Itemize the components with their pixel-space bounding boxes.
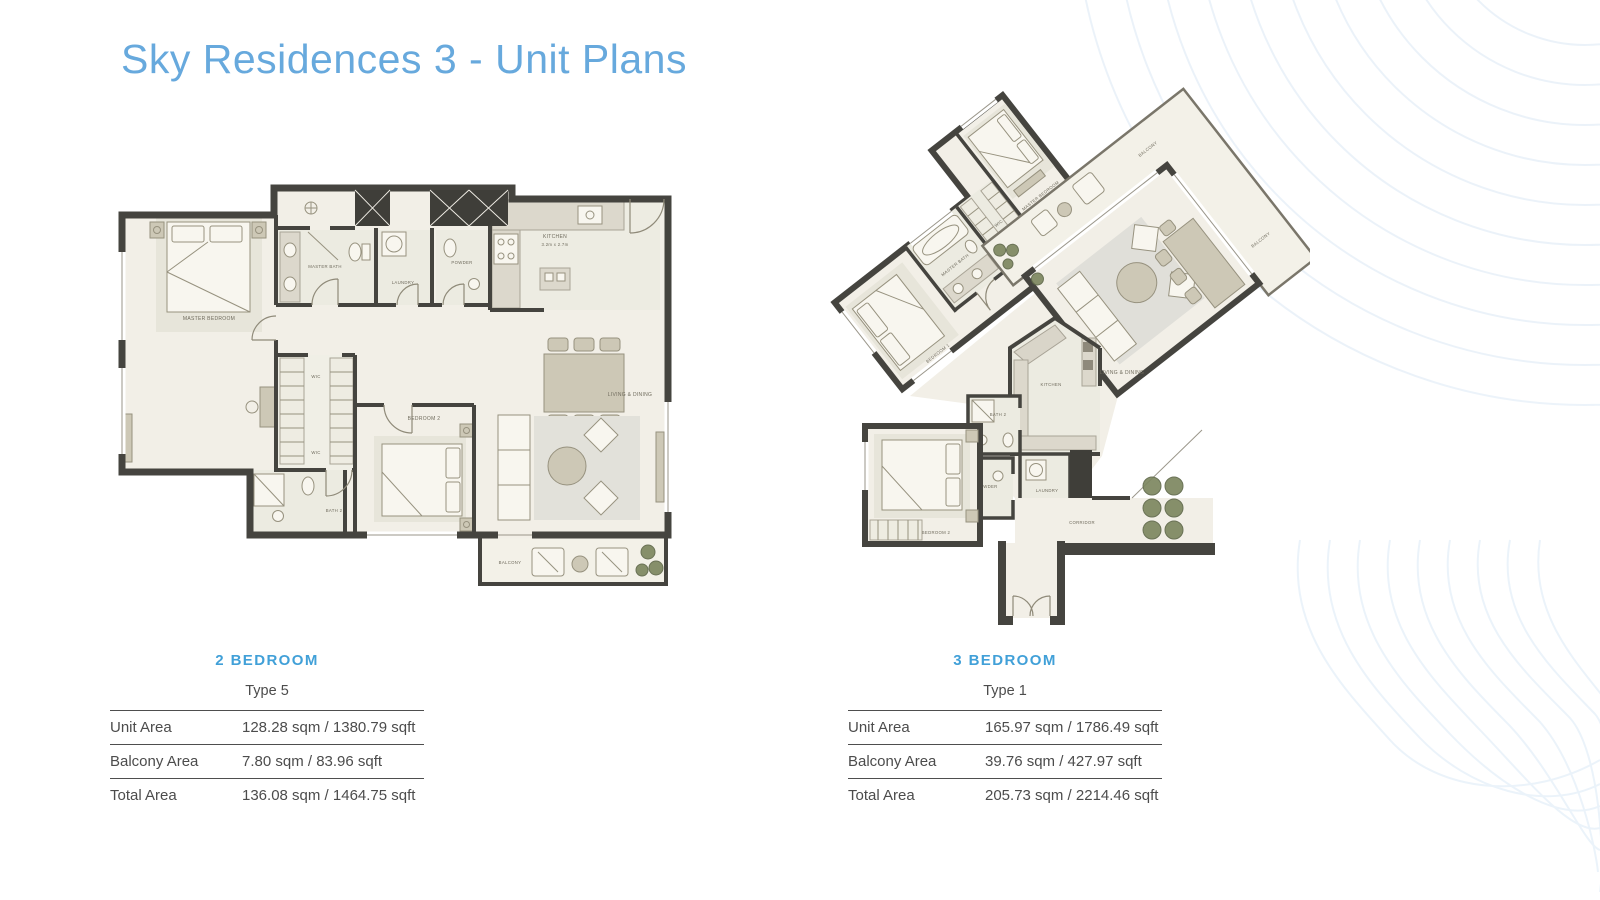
room-label-wic: WIC (311, 374, 320, 379)
plan-heading-2br: 2 BEDROOM (110, 652, 424, 669)
room-label-laundry: LAUNDRY (392, 280, 415, 285)
type-label-2br: Type 5 (110, 683, 424, 699)
bedroom-2 (374, 424, 473, 531)
bedroom-2: BEDROOM 2 (862, 426, 981, 544)
stove-icon (494, 234, 518, 264)
table-row: Unit Area 165.97 sqm / 1786.49 sqft (848, 710, 1162, 744)
type-label-3br: Type 1 (848, 683, 1162, 699)
room-label-master-bath: MASTER BATH (308, 264, 342, 269)
row-label: Total Area (848, 787, 985, 804)
armchair-icon (1132, 225, 1159, 252)
sink-icon (284, 243, 296, 257)
sink-icon (469, 279, 480, 290)
room-label-kitchen: KITCHEN (543, 234, 567, 240)
room-label-wic: WIC (311, 450, 320, 455)
table-row: Unit Area 128.28 sqm / 1380.79 sqft (110, 710, 424, 744)
row-label: Total Area (110, 787, 242, 804)
area-table-2-bedroom: 2 BEDROOM Type 5 Unit Area 128.28 sqm / … (110, 652, 424, 812)
dining-set (544, 338, 624, 428)
room-label-balcony: BALCONY (499, 560, 522, 565)
plan-heading-3br: 3 BEDROOM (848, 652, 1162, 669)
room-label-bath2: BATH 2 (326, 508, 343, 513)
row-label: Unit Area (110, 719, 242, 736)
room-label-powder: POWDER (451, 260, 472, 265)
table-row: Total Area 205.73 sqm / 2214.46 sqft (848, 778, 1162, 812)
page-title: Sky Residences 3 - Unit Plans (121, 36, 687, 83)
coffee-table-icon (548, 447, 586, 485)
row-value: 136.08 sqm / 1464.75 sqft (242, 787, 424, 804)
row-value: 128.28 sqm / 1380.79 sqft (242, 719, 424, 736)
sofa-icon (498, 415, 530, 520)
closet-shaft (1070, 450, 1092, 498)
toilet-icon (1003, 433, 1013, 447)
room-label-bedroom2: BEDROOM 2 (922, 530, 951, 535)
row-value: 7.80 sqm / 83.96 sqft (242, 753, 424, 770)
area-table-3-bedroom: 3 BEDROOM Type 1 Unit Area 165.97 sqm / … (848, 652, 1162, 812)
sink-icon (273, 511, 284, 522)
room-label-laundry: LAUNDRY (1036, 488, 1059, 493)
row-value: 165.97 sqm / 1786.49 sqft (985, 719, 1162, 736)
room-label-bedroom2: BEDROOM 2 (408, 416, 441, 422)
table-row: Total Area 136.08 sqm / 1464.75 sqft (110, 778, 424, 812)
side-table-icon (572, 556, 588, 572)
room-label-master-bedroom: MASTER BEDROOM (183, 316, 235, 322)
living-area (498, 415, 664, 520)
room-label-living: LIVING & DINING (608, 392, 653, 398)
kitchen-sink-icon (578, 206, 602, 224)
room-dims-kitchen: 3.2m x 2.7m (542, 242, 569, 247)
table-row: Balcony Area 7.80 sqm / 83.96 sqft (110, 744, 424, 778)
plant-icon (641, 545, 655, 559)
room-label-kitchen: KITCHEN (1041, 382, 1062, 387)
row-label: Unit Area (848, 719, 985, 736)
floorplan-3-bedroom: MASTER BEDROOM MASTER BATH WIC BEDROOM 1… (770, 86, 1310, 626)
toilet-icon (302, 477, 314, 495)
floorplan-2-bedroom: MASTER BEDROOM MASTER BATH LAUNDRY POWDE… (112, 172, 672, 602)
row-value: 205.73 sqm / 2214.46 sqft (985, 787, 1162, 804)
table-row: Balcony Area 39.76 sqm / 427.97 sqft (848, 744, 1162, 778)
dining-table-icon (544, 354, 624, 412)
tv-console-icon (656, 432, 664, 502)
laundry (382, 232, 406, 256)
desk-icon (260, 387, 275, 427)
room-label-bath2: BATH 2 (990, 412, 1007, 417)
laundry: LAUNDRY (1020, 450, 1092, 498)
row-label: Balcony Area (848, 753, 985, 770)
row-label: Balcony Area (110, 753, 242, 770)
room-label-corridor: CORRIDOR (1069, 520, 1095, 525)
row-value: 39.76 sqm / 427.97 sqft (985, 753, 1162, 770)
room-label-living: LIVING & DINING (1100, 370, 1145, 376)
wave-lines (1298, 540, 1600, 900)
toilet-icon (444, 239, 456, 257)
kitchen: KITCHEN (1010, 318, 1100, 454)
sink-icon (284, 277, 296, 291)
toilet-icon (349, 243, 361, 261)
sink-icon (993, 471, 1003, 481)
